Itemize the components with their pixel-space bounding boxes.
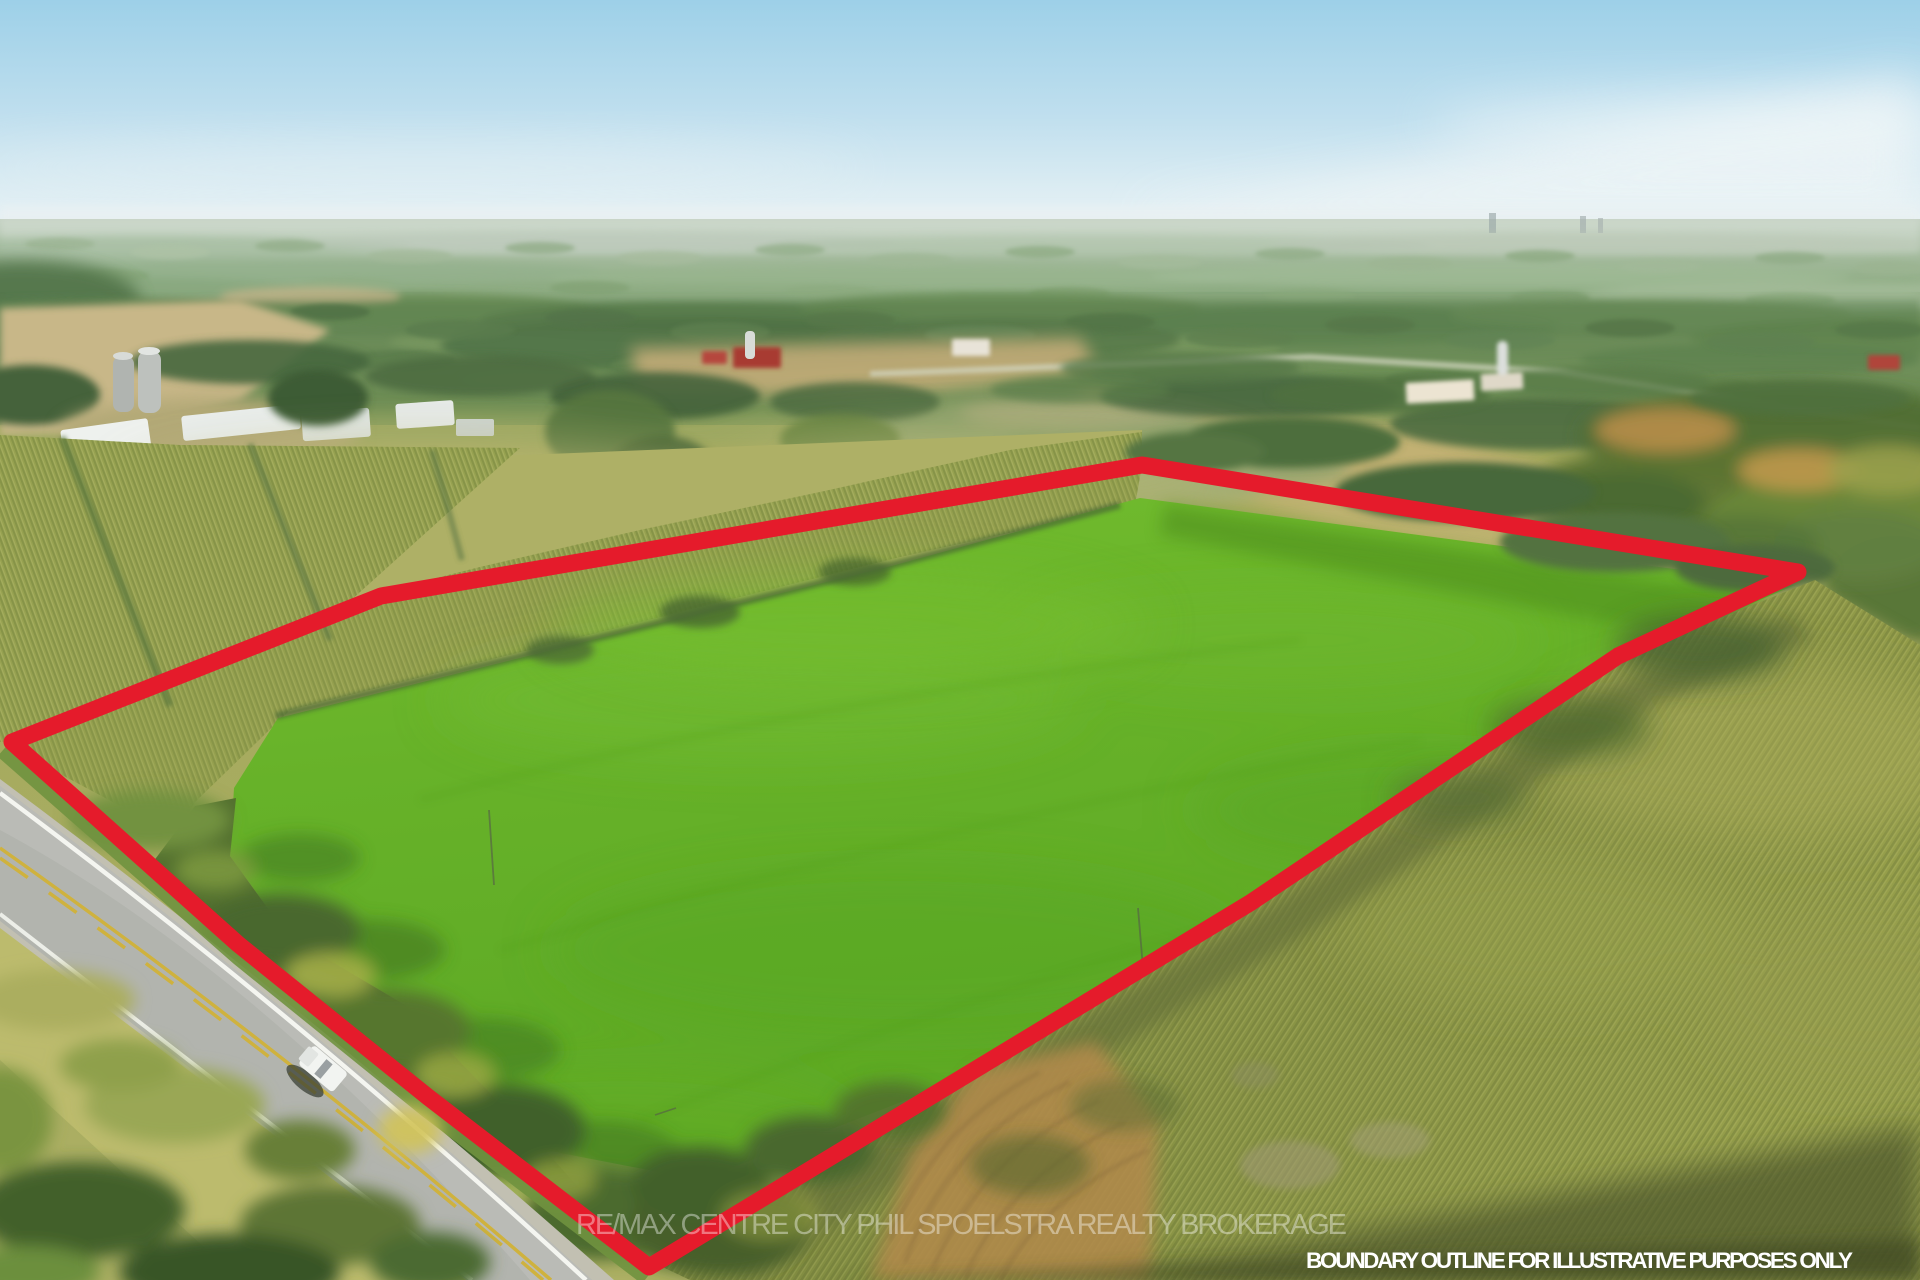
svg-text:BOUNDARY OUTLINE FOR ILLUSTRAT: BOUNDARY OUTLINE FOR ILLUSTRATIVE PURPOS… xyxy=(1306,1248,1853,1273)
svg-text:RE/MAX CENTRE CITY PHIL SPOELS: RE/MAX CENTRE CITY PHIL SPOELSTRA REALTY… xyxy=(576,1209,1348,1241)
